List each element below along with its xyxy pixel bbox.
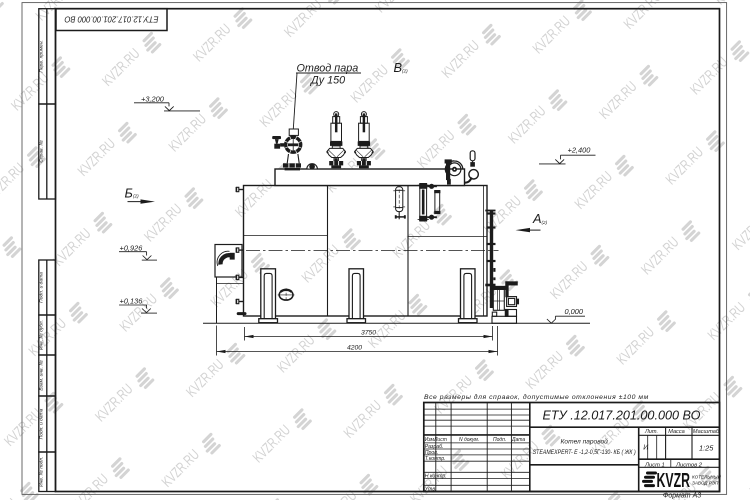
svg-text:Справ. №: Справ. №	[39, 140, 45, 162]
svg-text:KVZR.RU: KVZR.RU	[250, 422, 294, 466]
svg-text:KVZR.RU: KVZR.RU	[93, 381, 137, 425]
svg-text:KVZR.RU: KVZR.RU	[191, 21, 235, 65]
svg-text:KVZR.RU: KVZR.RU	[75, 136, 119, 180]
svg-text:KVZR.RU: KVZR.RU	[166, 111, 210, 155]
svg-text:Масштаб: Масштаб	[693, 429, 720, 435]
svg-text:Подп.: Подп.	[493, 437, 506, 443]
svg-text:ЕТУ.12.017.201.00.000 ВО: ЕТУ.12.017.201.00.000 ВО	[64, 15, 158, 25]
svg-text:3750: 3750	[361, 330, 376, 337]
svg-text:KVZR.RU: KVZR.RU	[100, 46, 144, 90]
svg-text:N докум.: N докум.	[459, 437, 479, 443]
svg-text:KVZR.RU: KVZR.RU	[663, 144, 707, 188]
svg-text:Лит.: Лит.	[644, 429, 658, 435]
svg-text:ЗАВОД РЭП: ЗАВОД РЭП	[692, 481, 719, 486]
svg-text:KVZR.RU: KVZR.RU	[415, 128, 459, 172]
svg-text:KVZR.RU: KVZR.RU	[614, 324, 658, 368]
svg-text:KVZR: KVZR	[657, 469, 691, 492]
svg-text:KVZR.RU: KVZR.RU	[142, 201, 186, 245]
svg-text:И: И	[643, 445, 649, 452]
svg-text:KVZR.RU: KVZR.RU	[299, 242, 343, 286]
svg-text:(2): (2)	[133, 194, 139, 199]
svg-text:KVZR.RU: KVZR.RU	[730, 210, 750, 254]
svg-text:KVZR.RU: KVZR.RU	[275, 332, 319, 376]
svg-text:KVZR.RU: KVZR.RU	[390, 218, 434, 262]
svg-text:KVZR.RU: KVZR.RU	[548, 259, 592, 303]
svg-text:KVZR.RU: KVZR.RU	[621, 0, 665, 33]
svg-text:STEAMEXPERT- Е -1,2-0,5Г-130-: STEAMEXPERT- Е -1,2-0,5Г-130- КБ ( ЖК )	[533, 449, 636, 456]
svg-text:1:25: 1:25	[699, 444, 714, 453]
svg-text:KVZR.RU: KVZR.RU	[0, 250, 3, 294]
svg-text:KVZR.RU: KVZR.RU	[712, 0, 750, 8]
svg-text:А: А	[532, 211, 542, 226]
svg-text:(2): (2)	[402, 69, 408, 74]
svg-text:Лист: Лист	[433, 437, 447, 443]
svg-text:KVZR.RU: KVZR.RU	[9, 70, 53, 114]
svg-text:KVZR.RU: KVZR.RU	[499, 439, 543, 483]
svg-text:Дата: Дата	[511, 437, 525, 443]
svg-text:Подп. и дата: Подп. и дата	[39, 272, 45, 303]
svg-text:+2,400: +2,400	[568, 146, 592, 155]
svg-text:(2): (2)	[542, 220, 548, 225]
svg-text:Инв. № подл.: Инв. № подл.	[39, 457, 45, 487]
svg-text:KVZR.RU: KVZR.RU	[688, 54, 732, 98]
svg-text:Масса: Масса	[668, 429, 685, 435]
svg-text:Пров.: Пров.	[425, 450, 439, 456]
svg-text:4200: 4200	[347, 345, 362, 352]
svg-text:KVZR.RU: KVZR.RU	[26, 316, 70, 360]
svg-text:KVZR.RU: KVZR.RU	[341, 398, 385, 442]
svg-text:KVZR.RU: KVZR.RU	[530, 13, 574, 57]
svg-text:+0,926: +0,926	[120, 243, 144, 252]
svg-text:Взам. инв. №: Взам. инв. №	[39, 360, 45, 390]
svg-text:Т.контр.: Т.контр.	[425, 456, 446, 462]
svg-text:KVZR.RU: KVZR.RU	[597, 79, 641, 123]
svg-text:KVZR.RU: KVZR.RU	[68, 471, 112, 500]
svg-text:+0,136: +0,136	[120, 297, 144, 306]
svg-text:KVZR.RU: KVZR.RU	[282, 0, 326, 41]
svg-text:0,000: 0,000	[565, 307, 584, 316]
svg-text:KVZR.RU: KVZR.RU	[506, 103, 550, 147]
svg-text:KVZR.RU: KVZR.RU	[51, 226, 95, 270]
svg-text:Инв. № дубл.: Инв. № дубл.	[39, 320, 45, 350]
svg-text:Листов 2: Листов 2	[675, 462, 703, 468]
svg-text:Котел паровой: Котел паровой	[561, 438, 609, 446]
svg-text:Утв.: Утв.	[425, 486, 437, 492]
svg-text:Отвод пара: Отвод пара	[297, 62, 359, 74]
svg-text:KVZR.RU: KVZR.RU	[572, 169, 616, 213]
svg-text:Все размеры для справок, допус: Все размеры для справок, допустимые откл…	[424, 393, 649, 401]
svg-text:KVZR.RU: KVZR.RU	[0, 160, 28, 204]
svg-text:KVZR.RU: KVZR.RU	[439, 38, 483, 82]
svg-text:Подп. и дата: Подп. и дата	[39, 408, 45, 439]
svg-text:KVZR.RU: KVZR.RU	[0, 496, 21, 500]
svg-text:KVZR.RU: KVZR.RU	[184, 357, 228, 401]
svg-text:+3,200: +3,200	[141, 94, 165, 103]
svg-text:КОТЕЛЬНЫЙ: КОТЕЛЬНЫЙ	[692, 473, 722, 480]
svg-text:Лист 1: Лист 1	[644, 462, 665, 468]
svg-text:KVZR.RU: KVZR.RU	[317, 488, 361, 500]
svg-text:KVZR.RU: KVZR.RU	[523, 349, 567, 393]
svg-text:KVZR.RU: KVZR.RU	[639, 234, 683, 278]
svg-text:Н.контр.: Н.контр.	[425, 474, 447, 480]
svg-text:KVZR.RU: KVZR.RU	[233, 177, 277, 221]
svg-text:ЕТУ .12.017.201.00.000 ВО: ЕТУ .12.017.201.00.000 ВО	[543, 409, 701, 423]
svg-text:Перв. примен.: Перв. примен.	[39, 40, 45, 73]
svg-text:Формат А3: Формат А3	[663, 492, 701, 499]
svg-text:Ду 150: Ду 150	[310, 74, 345, 86]
svg-text:Б: Б	[125, 185, 133, 200]
svg-text:KVZR.RU: KVZR.RU	[159, 447, 203, 491]
